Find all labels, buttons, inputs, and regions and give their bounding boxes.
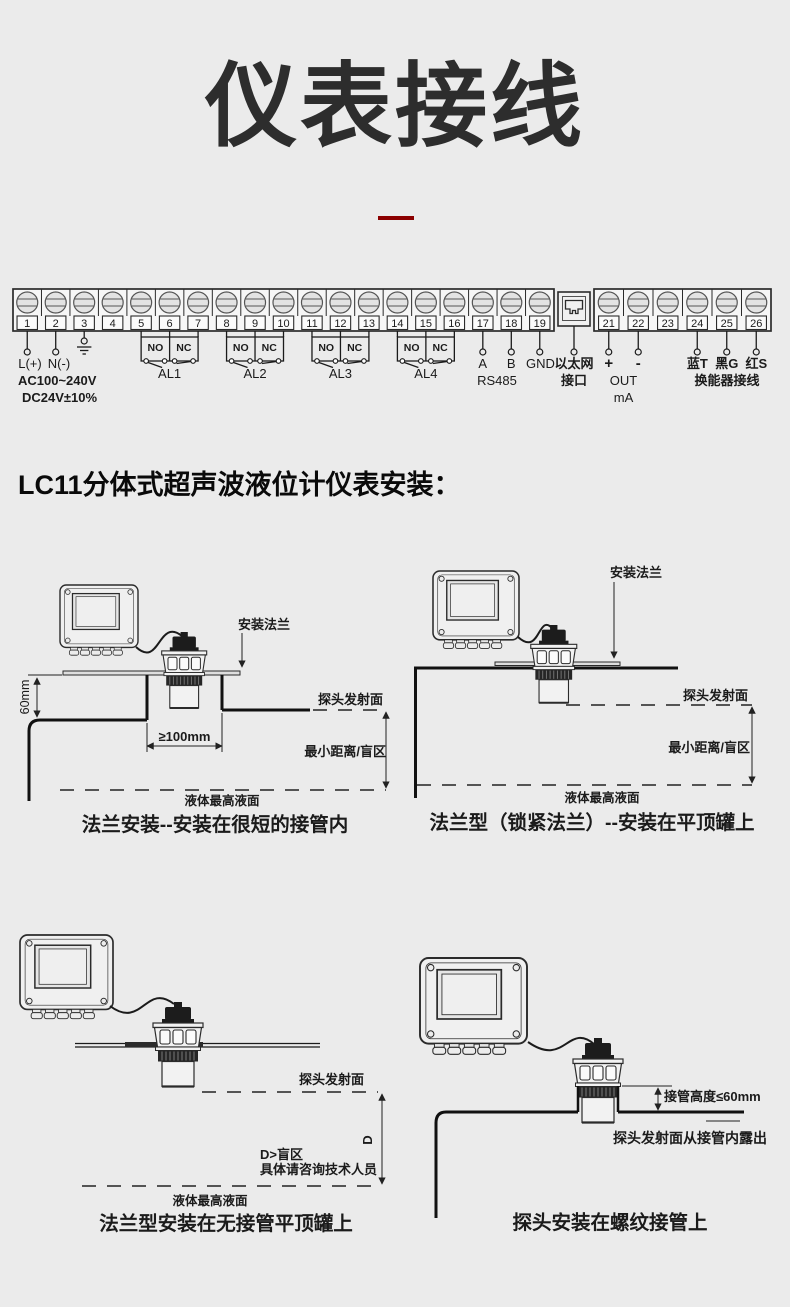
svg-text:21: 21 <box>603 318 615 330</box>
terminal-label-L: L(+) <box>18 356 41 371</box>
d-note-line1: D>盲区 <box>260 1147 303 1162</box>
transducer-blue-label: 蓝T <box>687 356 708 371</box>
svg-text:AL4: AL4 <box>414 366 437 381</box>
out-minus-label: - <box>636 355 641 372</box>
sensor-cable <box>528 1038 594 1050</box>
svg-text:13: 13 <box>363 318 375 330</box>
svg-text:NO: NO <box>233 342 249 354</box>
blind-zone-label: 最小距离/盲区 <box>668 740 750 755</box>
svg-text:12: 12 <box>334 318 346 330</box>
dim-100mm-label: ≥100mm <box>159 729 211 744</box>
svg-text:16: 16 <box>448 318 460 330</box>
terminal-cells: 1234567891011121314151617181921222324252… <box>13 289 771 381</box>
wire-end <box>508 349 514 355</box>
terminal-strip-diagram: 1234567891011121314151617181921222324252… <box>0 283 790 408</box>
svg-text:NC: NC <box>176 342 192 354</box>
d-dim-label: D <box>360 1135 375 1144</box>
nozzle-height-label: 接管高度≤60mm <box>664 1089 761 1104</box>
svg-text:4: 4 <box>110 318 116 330</box>
ultrasonic-sensor <box>573 1038 623 1123</box>
red-divider <box>378 216 414 220</box>
svg-text:AL1: AL1 <box>158 366 181 381</box>
probe-face-label: 探头发射面 <box>318 692 383 707</box>
ethernet-label-2: 接口 <box>561 373 587 388</box>
out-plus-label: + <box>604 355 613 372</box>
out-label: OUT <box>610 373 638 388</box>
wire-end <box>537 349 543 355</box>
ultrasonic-sensor <box>531 625 577 703</box>
svg-text:AL2: AL2 <box>243 366 266 381</box>
tank-roof-left <box>29 720 147 801</box>
ethernet-label-1: 以太网 <box>554 356 593 371</box>
out-ma-label: mA <box>614 390 634 405</box>
svg-text:14: 14 <box>391 318 403 330</box>
svg-text:5: 5 <box>138 318 144 330</box>
transducer-label: 换能器接线 <box>694 373 759 388</box>
controller-box <box>433 571 519 648</box>
svg-text:25: 25 <box>721 318 733 330</box>
wire-end <box>753 349 759 355</box>
transducer-black-label: 黑G <box>715 356 738 371</box>
d-note-line2: 具体请咨询技术人员 <box>260 1162 377 1177</box>
svg-text:8: 8 <box>223 318 229 330</box>
ultrasonic-sensor <box>162 632 207 708</box>
svg-text:22: 22 <box>632 318 644 330</box>
svg-text:15: 15 <box>420 318 432 330</box>
panel-caption: 法兰型安装在无接管平顶罐上 <box>99 1212 353 1235</box>
rs485-bus-label: RS485 <box>477 373 517 388</box>
terminal-label-N: N(-) <box>48 356 70 371</box>
svg-text:3: 3 <box>81 318 87 330</box>
panel-caption: 法兰型（锁紧法兰）--安装在平顶罐上 <box>430 811 755 834</box>
svg-text:23: 23 <box>662 318 674 330</box>
svg-text:6: 6 <box>167 318 173 330</box>
blind-zone-label: 最小距离/盲区 <box>304 744 386 759</box>
svg-text:7: 7 <box>195 318 201 330</box>
probe-face-note: 探头发射面从接管内露出 <box>613 1130 767 1146</box>
svg-text:NC: NC <box>262 342 278 354</box>
svg-text:1: 1 <box>24 318 30 330</box>
relay-AL1: NONCAL1 <box>141 331 198 381</box>
svg-text:19: 19 <box>534 318 546 330</box>
relay-AL2: NONCAL2 <box>227 331 284 381</box>
panel-caption: 探头安装在螺纹接管上 <box>512 1211 707 1234</box>
transducer-red-label: 红S <box>745 356 767 371</box>
mounting-flange-plate <box>63 671 240 675</box>
sensor-cable <box>110 998 174 1013</box>
page-title: 仪表接线 <box>0 52 790 162</box>
svg-text:NC: NC <box>347 342 363 354</box>
install-diagram-flange-no-nozzle: 探头发射面 D D>盲区 具体请咨询技术人员 液体最高液面 法兰型安装在无接管平… <box>10 930 400 1250</box>
svg-text:9: 9 <box>252 318 258 330</box>
probe-face-label: 探头发射面 <box>683 688 748 703</box>
install-diagram-flange-short-nozzle: 60mm ≥100mm 安装法兰 探头发射面 最小距离/盲区 液体最高液面 法兰… <box>10 555 400 850</box>
power-voltage-ac: AC100~240V <box>18 373 97 388</box>
svg-text:NO: NO <box>318 342 334 354</box>
svg-text:2: 2 <box>53 318 59 330</box>
install-diagram-locking-flange: 安装法兰 探头发射面 最小距离/盲区 液体最高液面 法兰型（锁紧法兰）--安装在… <box>400 555 790 850</box>
svg-text:11: 11 <box>306 318 317 330</box>
power-voltage-dc: DC24V±10% <box>22 390 98 405</box>
wire-end <box>53 349 59 355</box>
svg-text:NO: NO <box>404 342 420 354</box>
controller-box <box>420 958 527 1054</box>
probe-face-label: 探头发射面 <box>299 1072 364 1087</box>
mount-flange-label: 安装法兰 <box>610 565 662 580</box>
mount-flange-label: 安装法兰 <box>238 617 290 632</box>
section-heading: LC11分体式超声波液位计仪表安装： <box>18 463 461 502</box>
relay-AL3: NONCAL3 <box>312 331 369 381</box>
svg-text:NO: NO <box>147 342 163 354</box>
svg-text:18: 18 <box>505 318 517 330</box>
svg-text:NC: NC <box>433 342 449 354</box>
install-diagram-threaded-nozzle: 接管高度≤60mm 探头发射面从接管内露出 探头安装在螺纹接管上 <box>400 930 790 1250</box>
dim-60mm-label: 60mm <box>18 680 32 715</box>
rs485-a-label: A <box>478 356 487 371</box>
max-level-label: 液体最高液面 <box>172 1193 248 1208</box>
wire-end <box>480 349 486 355</box>
svg-text:10: 10 <box>277 318 289 330</box>
max-level-label: 液体最高液面 <box>184 793 260 808</box>
wire-end <box>694 349 700 355</box>
svg-text:17: 17 <box>477 318 489 330</box>
wire-end <box>24 349 30 355</box>
svg-text:AL3: AL3 <box>329 366 352 381</box>
svg-text:26: 26 <box>750 318 762 330</box>
earth-icon <box>77 331 91 354</box>
controller-box <box>60 585 138 655</box>
rs485-gnd-label: GND <box>526 356 555 371</box>
wire-end <box>724 349 730 355</box>
tank-roof-left <box>436 1112 578 1218</box>
rs485-b-label: B <box>507 356 516 371</box>
relay-AL4: NONCAL4 <box>397 331 454 381</box>
controller-box <box>20 935 113 1019</box>
page: 仪表接线 12345678910111213141516171819212223… <box>0 0 790 1307</box>
svg-text:24: 24 <box>691 318 703 330</box>
panel-caption: 法兰安装--安装在很短的接管内 <box>82 813 349 836</box>
ultrasonic-sensor <box>153 1002 203 1087</box>
ethernet-port-icon <box>558 292 590 355</box>
max-level-label: 液体最高液面 <box>564 790 640 805</box>
